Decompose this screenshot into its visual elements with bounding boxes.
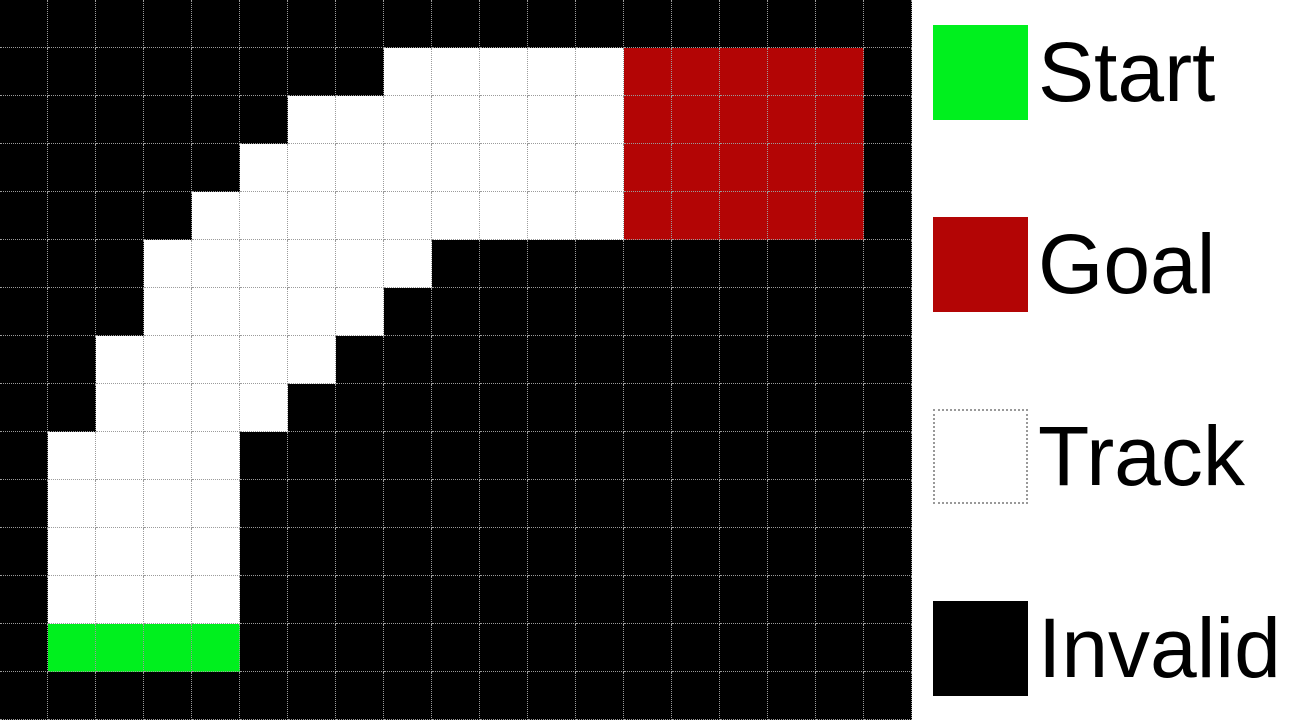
grid-cell-track [144,240,192,288]
grid-cell-invalid [48,48,96,96]
grid-cell-invalid [768,480,816,528]
grid-cell-invalid [288,624,336,672]
grid-cell-invalid [480,480,528,528]
grid-cell-track [96,336,144,384]
grid-cell-goal [720,192,768,240]
grid-cell-track [576,96,624,144]
grid-cell-invalid [864,576,912,624]
grid-cell-track [240,144,288,192]
grid-cell-invalid [192,48,240,96]
grid-cell-invalid [528,288,576,336]
grid-cell-track [96,480,144,528]
grid-cell-invalid [432,288,480,336]
grid-cell-track [192,528,240,576]
grid-cell-invalid [864,48,912,96]
grid-cell-invalid [624,0,672,48]
grid-cell-goal [816,96,864,144]
grid-cell-invalid [96,48,144,96]
grid-cell-invalid [288,48,336,96]
grid-cell-invalid [384,288,432,336]
grid-cell-track [192,192,240,240]
grid-cell-invalid [864,0,912,48]
grid-cell-invalid [720,480,768,528]
grid-cell-invalid [240,96,288,144]
legend-item-track: Track [933,409,1245,504]
grid-cell-invalid [816,336,864,384]
grid-cell-goal [768,192,816,240]
grid-cell-invalid [816,432,864,480]
grid-cell-invalid [816,624,864,672]
grid-cell-invalid [720,0,768,48]
grid-cell-track [384,48,432,96]
grid-cell-track [192,336,240,384]
grid-cell-invalid [576,384,624,432]
grid-cell-track [528,144,576,192]
legend-item-invalid: Invalid [933,601,1281,696]
grid-cell-track [288,96,336,144]
grid-cell-invalid [96,288,144,336]
grid-cell-track [192,432,240,480]
grid-cell-invalid [528,0,576,48]
grid-cell-invalid [624,336,672,384]
grid-cell-invalid [432,336,480,384]
grid-cell-track [480,144,528,192]
grid-cell-invalid [480,336,528,384]
grid-cell-invalid [48,192,96,240]
grid-cell-invalid [432,624,480,672]
grid-cell-invalid [624,240,672,288]
grid-cell-invalid [864,432,912,480]
grid-cell-invalid [528,576,576,624]
grid-cell-invalid [864,480,912,528]
grid-cell-track [480,192,528,240]
grid-cell-track [288,144,336,192]
grid-cell-invalid [48,0,96,48]
grid-cell-invalid [768,576,816,624]
grid-cell-invalid [288,528,336,576]
grid-cell-invalid [720,240,768,288]
grid-cell-invalid [480,432,528,480]
grid-cell-goal [720,144,768,192]
grid-cell-invalid [672,0,720,48]
grid-cell-invalid [384,480,432,528]
grid-cell-invalid [192,96,240,144]
grid-cell-invalid [144,144,192,192]
grid-cell-invalid [864,384,912,432]
grid-cell-invalid [528,480,576,528]
grid-cell-track [96,576,144,624]
grid-cell-invalid [576,336,624,384]
grid-cell-invalid [864,624,912,672]
grid-cell-track [432,96,480,144]
grid-cell-invalid [0,48,48,96]
grid-cell-track [480,48,528,96]
grid-cell-invalid [192,0,240,48]
grid-cell-invalid [432,0,480,48]
grid-cell-invalid [624,672,672,720]
grid-cell-invalid [192,144,240,192]
grid-cell-track [576,48,624,96]
grid-cell-invalid [768,336,816,384]
grid-cell-invalid [576,528,624,576]
grid-cell-invalid [0,144,48,192]
grid-cell-start [192,624,240,672]
grid-cell-invalid [48,144,96,192]
grid-cell-invalid [864,336,912,384]
grid-cell-track [336,288,384,336]
grid-cell-invalid [528,384,576,432]
grid-cell-goal [768,144,816,192]
grid-cell-invalid [336,528,384,576]
track-swatch [933,409,1028,504]
grid-cell-track [432,192,480,240]
grid-cell-invalid [0,432,48,480]
start-swatch [933,25,1028,120]
grid-cell-track [192,480,240,528]
grid-cell-invalid [240,624,288,672]
grid-cell-track [384,96,432,144]
grid-cell-invalid [0,672,48,720]
grid-cell-invalid [336,576,384,624]
grid-cell-invalid [240,576,288,624]
grid-cell-track [144,528,192,576]
grid-cell-invalid [384,384,432,432]
grid-cell-invalid [624,576,672,624]
grid-cell-invalid [480,672,528,720]
grid-cell-invalid [672,480,720,528]
grid-cell-invalid [288,672,336,720]
grid-cell-invalid [336,432,384,480]
grid-cell-track [96,432,144,480]
grid-cell-track [432,144,480,192]
grid-cell-invalid [768,0,816,48]
grid-cell-track [48,432,96,480]
grid-cell-track [336,96,384,144]
grid-cell-invalid [624,288,672,336]
grid-cell-invalid [96,192,144,240]
grid-cell-invalid [480,624,528,672]
grid-cell-invalid [336,624,384,672]
grid-cell-invalid [768,528,816,576]
invalid-swatch [933,601,1028,696]
grid-cell-invalid [96,0,144,48]
grid-cell-invalid [768,624,816,672]
grid-cell-track [528,48,576,96]
grid-cell-invalid [144,0,192,48]
grid-cell-track [48,480,96,528]
grid-cell-invalid [0,336,48,384]
grid-cell-invalid [0,384,48,432]
legend-label-start: Start [1038,25,1215,120]
grid-cell-invalid [576,0,624,48]
grid-cell-invalid [624,480,672,528]
grid-cell-goal [624,96,672,144]
grid-cell-invalid [0,96,48,144]
grid-cell-start [96,624,144,672]
grid-cell-start [144,624,192,672]
grid-cell-invalid [432,672,480,720]
grid-cell-track [384,192,432,240]
grid-cell-invalid [720,672,768,720]
grid-cell-invalid [864,672,912,720]
grid-cell-invalid [336,384,384,432]
grid-cell-invalid [0,528,48,576]
grid-cell-invalid [240,0,288,48]
grid-cell-invalid [720,624,768,672]
grid-cell-invalid [672,240,720,288]
grid-cell-invalid [48,384,96,432]
grid-cell-track [192,240,240,288]
grid-cell-invalid [240,432,288,480]
grid-cell-invalid [480,528,528,576]
grid-cell-invalid [576,480,624,528]
grid-cell-track [96,384,144,432]
grid-cell-invalid [672,576,720,624]
grid-cell-invalid [672,432,720,480]
racetrack-figure: Start Goal Track Invalid [0,0,1302,720]
grid-cell-goal [672,48,720,96]
grid-cell-track [144,480,192,528]
grid-cell-invalid [96,144,144,192]
grid-cell-track [144,576,192,624]
grid-cell-invalid [480,240,528,288]
grid-cell-track [192,576,240,624]
grid-cell-invalid [336,48,384,96]
grid-cell-goal [816,192,864,240]
grid-cell-invalid [720,528,768,576]
legend-label-track: Track [1038,409,1245,504]
grid-cell-invalid [672,288,720,336]
grid-cell-invalid [192,672,240,720]
grid-cell-invalid [768,384,816,432]
grid-cell-goal [624,144,672,192]
grid-cell-invalid [816,576,864,624]
grid-cell-track [288,336,336,384]
grid-cell-invalid [576,576,624,624]
grid-cell-goal [816,144,864,192]
grid-cell-invalid [432,528,480,576]
grid-cell-goal [816,48,864,96]
grid-cell-invalid [288,0,336,48]
grid-cell-invalid [336,0,384,48]
grid-cell-track [144,384,192,432]
grid-cell-goal [768,96,816,144]
grid-cell-invalid [0,0,48,48]
legend-item-start: Start [933,25,1215,120]
grid-cell-invalid [432,432,480,480]
grid-cell-invalid [672,336,720,384]
grid-cell-invalid [48,240,96,288]
grid-cell-invalid [720,336,768,384]
grid-cell-track [336,192,384,240]
grid-cell-invalid [720,384,768,432]
grid-cell-track [192,384,240,432]
grid-cell-invalid [768,288,816,336]
grid-cell-track [576,144,624,192]
grid-cell-invalid [384,336,432,384]
legend-item-goal: Goal [933,217,1215,312]
grid-cell-invalid [48,288,96,336]
grid-cell-invalid [384,0,432,48]
grid-cell-invalid [720,432,768,480]
grid-cell-goal [768,48,816,96]
grid-cell-invalid [336,336,384,384]
grid-cell-invalid [672,672,720,720]
grid-cell-invalid [48,336,96,384]
grid-cell-goal [720,48,768,96]
grid-cell-invalid [864,288,912,336]
grid-cell-invalid [384,672,432,720]
grid-cell-invalid [816,240,864,288]
grid-cell-invalid [432,384,480,432]
grid-cell-invalid [624,528,672,576]
grid-cell-invalid [672,528,720,576]
grid-cell-track [144,288,192,336]
grid-cell-invalid [816,528,864,576]
grid-cell-invalid [288,576,336,624]
grid-cell-invalid [48,96,96,144]
grid-cell-track [240,384,288,432]
grid-cell-track [288,240,336,288]
grid-cell-track [528,96,576,144]
grid-cell-track [48,528,96,576]
grid-cell-invalid [816,480,864,528]
grid-cell-invalid [672,624,720,672]
grid-cell-invalid [528,528,576,576]
grid-cell-invalid [624,624,672,672]
grid-cell-invalid [576,624,624,672]
grid-cell-invalid [816,288,864,336]
grid-cell-goal [720,96,768,144]
grid-cell-track [48,576,96,624]
grid-cell-invalid [864,240,912,288]
grid-cell-invalid [624,432,672,480]
grid-cell-invalid [240,48,288,96]
grid-cell-track [576,192,624,240]
grid-cell-invalid [768,240,816,288]
grid-cell-invalid [432,240,480,288]
grid-cell-track [336,144,384,192]
grid-cell-invalid [384,624,432,672]
grid-cell-goal [672,192,720,240]
grid-cell-invalid [336,480,384,528]
grid-cell-invalid [576,672,624,720]
grid-cell-track [384,144,432,192]
grid-cell-track [240,336,288,384]
grid-cell-invalid [336,672,384,720]
grid-cell-invalid [96,240,144,288]
grid-cell-invalid [576,432,624,480]
grid-cell-goal [624,192,672,240]
grid-cell-invalid [480,0,528,48]
grid-cell-invalid [864,96,912,144]
grid-cell-start [48,624,96,672]
grid-cell-invalid [624,384,672,432]
legend-label-goal: Goal [1038,217,1215,312]
grid-cell-invalid [528,672,576,720]
grid-cell-invalid [720,288,768,336]
grid-cell-invalid [288,432,336,480]
grid-cell-invalid [480,576,528,624]
grid-cell-track [384,240,432,288]
grid-cell-track [288,288,336,336]
grid-cell-invalid [816,384,864,432]
grid-cell-invalid [144,48,192,96]
grid-cell-invalid [816,672,864,720]
grid-cell-invalid [240,480,288,528]
grid-cell-invalid [288,480,336,528]
grid-cell-invalid [864,192,912,240]
grid-cell-invalid [0,480,48,528]
grid-cell-goal [672,96,720,144]
grid-cell-invalid [240,528,288,576]
grid-cell-track [144,336,192,384]
grid-cell-invalid [0,240,48,288]
grid-cell-invalid [720,576,768,624]
legend-label-invalid: Invalid [1038,601,1281,696]
grid-cell-invalid [384,528,432,576]
grid-cell-invalid [384,432,432,480]
grid-cell-invalid [672,384,720,432]
grid-cell-track [96,528,144,576]
grid-cell-invalid [144,672,192,720]
grid-cell-track [288,192,336,240]
grid-cell-track [528,192,576,240]
grid-cell-invalid [480,384,528,432]
grid-cell-invalid [864,144,912,192]
grid-cell-invalid [0,288,48,336]
grid-cell-invalid [576,288,624,336]
grid-cell-goal [672,144,720,192]
grid-cell-invalid [528,624,576,672]
grid-cell-track [480,96,528,144]
grid-cell-invalid [144,192,192,240]
grid-cell-invalid [144,96,192,144]
grid-cell-invalid [768,672,816,720]
grid-cell-track [192,288,240,336]
grid-cell-invalid [384,576,432,624]
grid-cell-track [240,288,288,336]
grid-cell-invalid [288,384,336,432]
grid-cell-invalid [0,576,48,624]
grid-cell-track [144,432,192,480]
grid-cell-invalid [528,240,576,288]
grid-cell-invalid [96,96,144,144]
grid-cell-invalid [528,432,576,480]
grid-cell-invalid [432,480,480,528]
grid-cell-invalid [240,672,288,720]
grid-cell-invalid [96,672,144,720]
grid-cell-track [240,192,288,240]
legend-panel: Start Goal Track Invalid [912,0,1302,720]
grid-cell-invalid [432,576,480,624]
grid-cell-invalid [816,0,864,48]
grid-cell-invalid [864,528,912,576]
racetrack-grid [0,0,912,720]
grid-cell-invalid [48,672,96,720]
grid-cell-invalid [768,432,816,480]
grid-cell-invalid [528,336,576,384]
grid-cell-invalid [0,624,48,672]
grid-cell-track [336,240,384,288]
grid-cell-invalid [480,288,528,336]
grid-cell-goal [624,48,672,96]
grid-cell-track [240,240,288,288]
grid-cell-track [432,48,480,96]
grid-cell-invalid [0,192,48,240]
goal-swatch [933,217,1028,312]
grid-cell-invalid [576,240,624,288]
